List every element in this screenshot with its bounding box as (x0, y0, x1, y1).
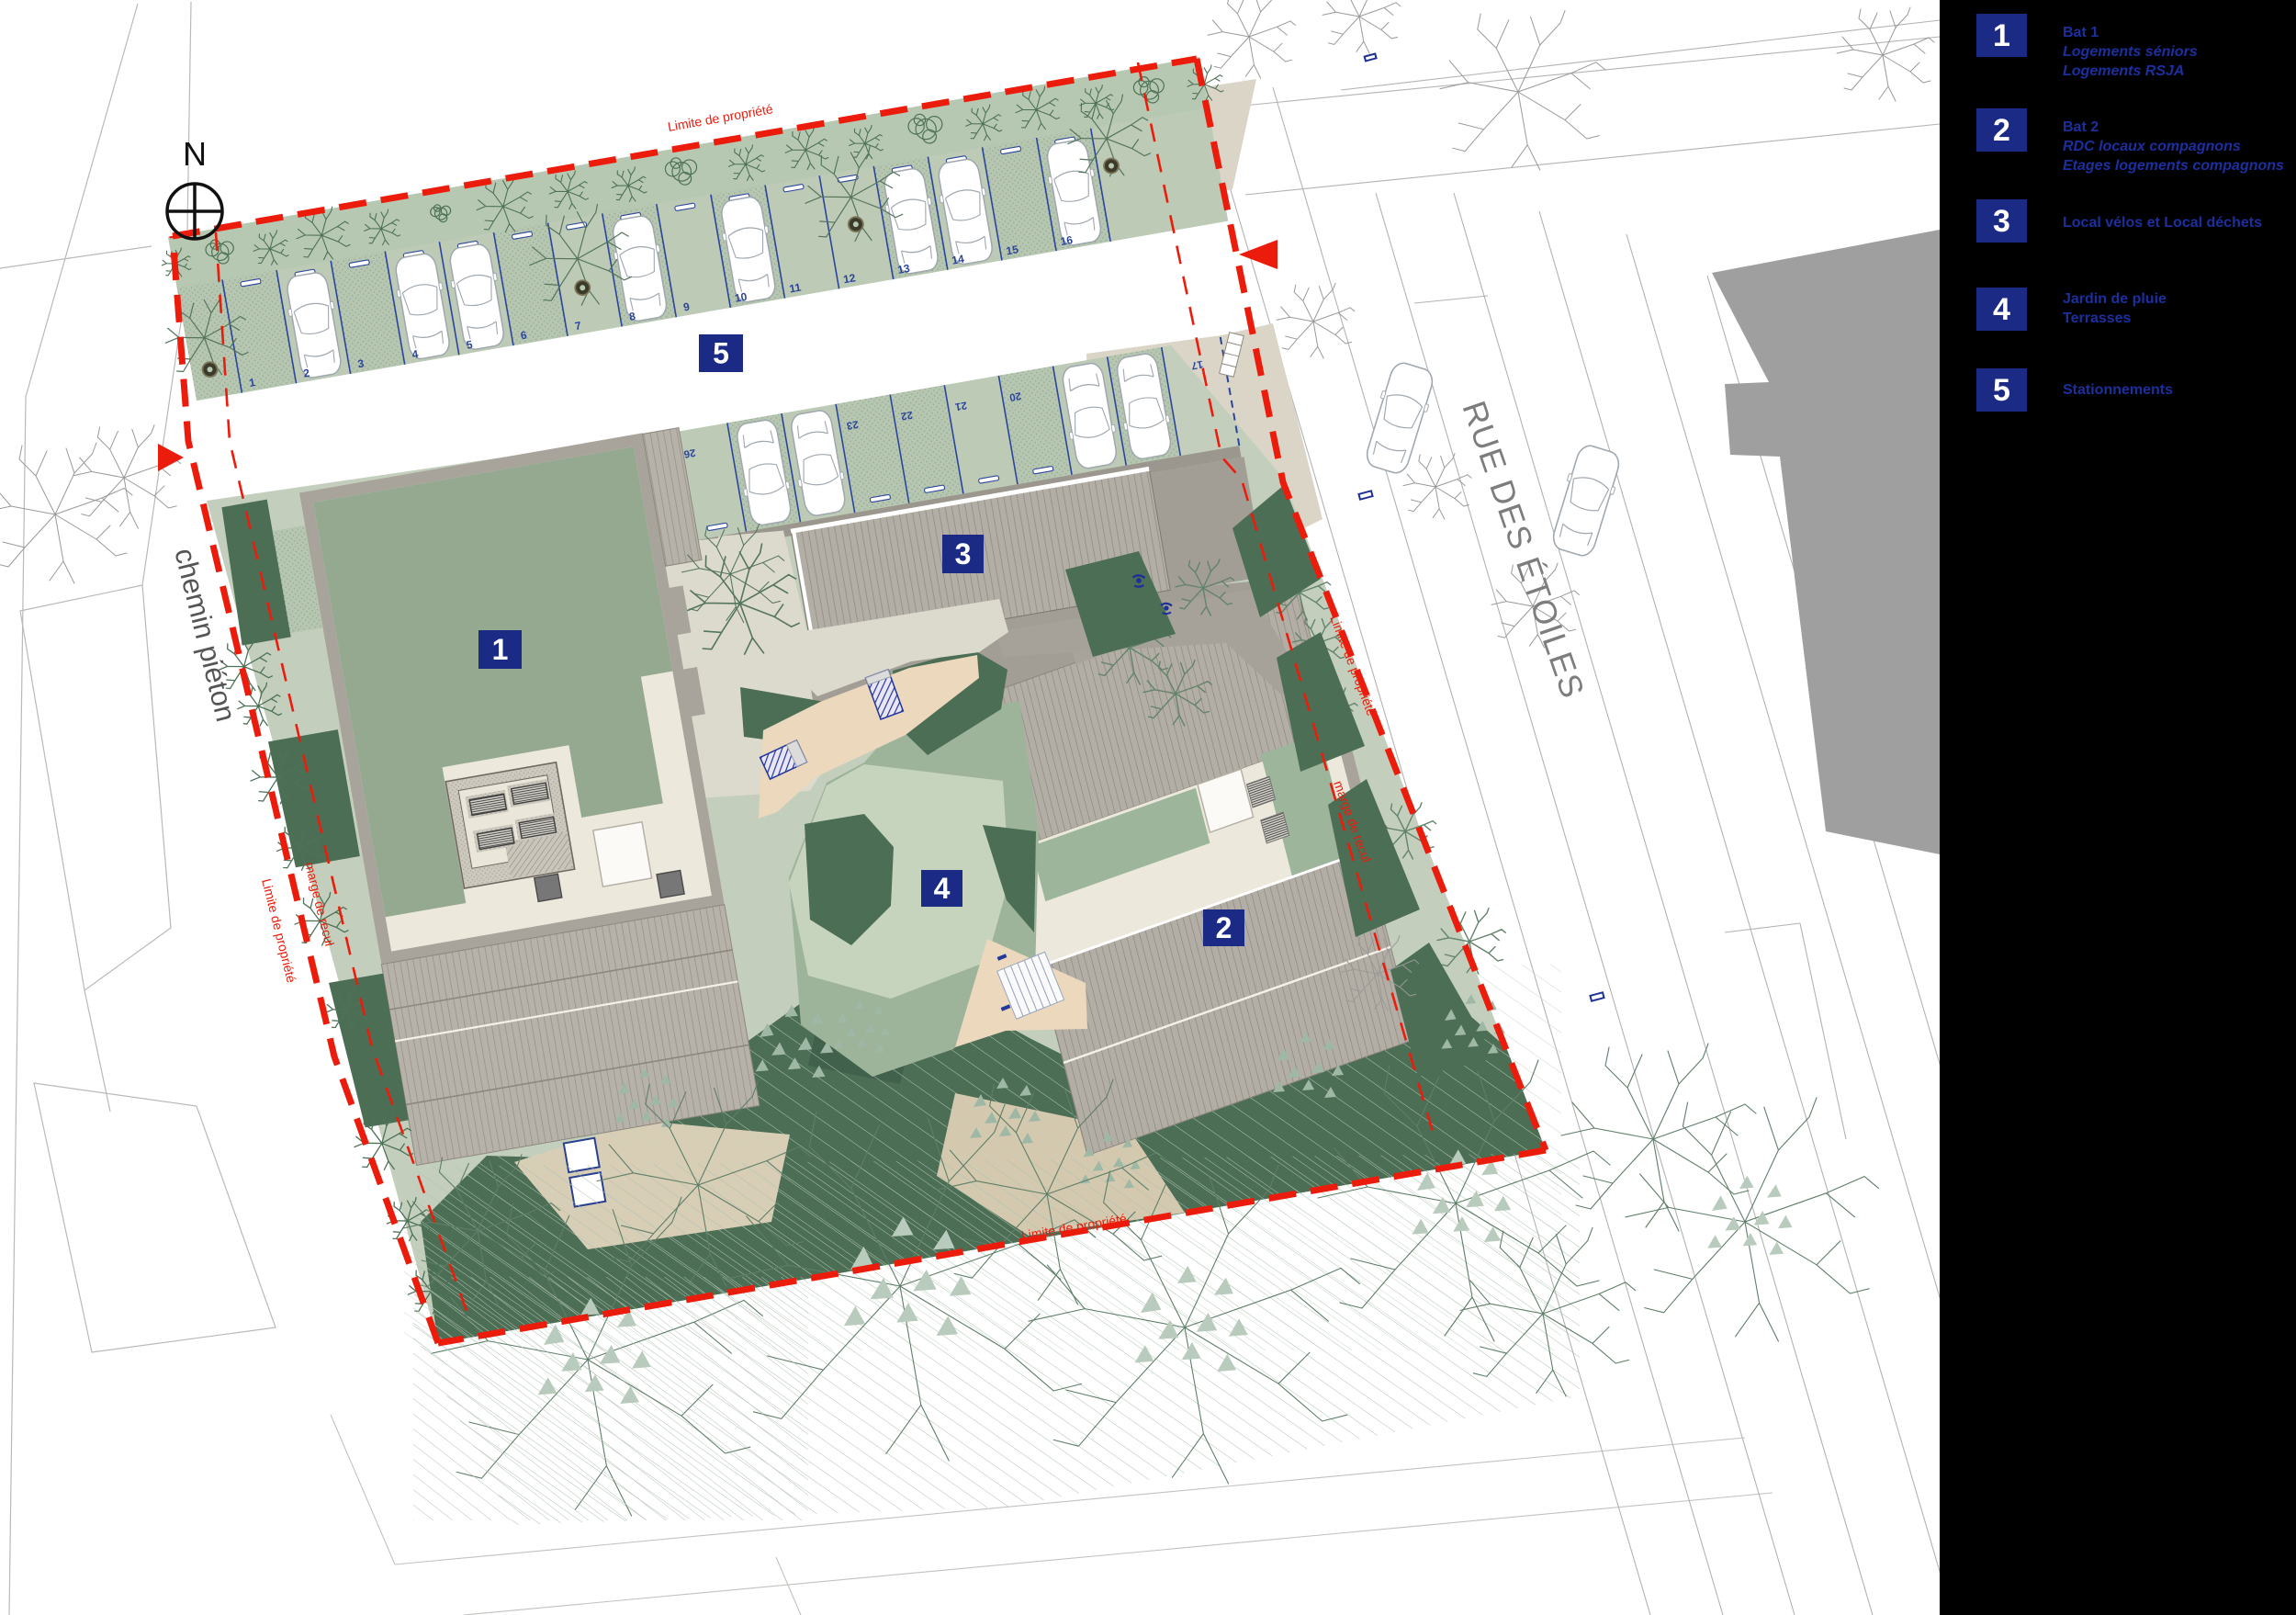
svg-text:26: 26 (682, 446, 696, 459)
svg-text:22: 22 (900, 409, 914, 422)
svg-text:23: 23 (846, 418, 860, 431)
svg-text:1: 1 (492, 633, 509, 666)
svg-text:2: 2 (1216, 911, 1232, 944)
svg-text:RDC locaux compagnons: RDC locaux compagnons (2063, 139, 2241, 154)
svg-text:Terrasses: Terrasses (2063, 311, 2132, 326)
svg-text:Etages logements compagnons: Etages logements compagnons (2063, 158, 2284, 174)
svg-text:Logements RSJA: Logements RSJA (2063, 63, 2184, 79)
svg-text:Bat 1: Bat 1 (2063, 25, 2099, 40)
svg-text:16: 16 (1060, 233, 1075, 248)
svg-text:14: 14 (951, 253, 965, 267)
svg-text:10: 10 (734, 290, 748, 305)
svg-text:N: N (183, 135, 207, 173)
svg-text:2: 2 (1993, 113, 2010, 148)
svg-text:Bat 2: Bat 2 (2063, 119, 2099, 135)
svg-text:Logements séniors: Logements séniors (2063, 44, 2198, 60)
svg-text:12: 12 (842, 271, 857, 286)
svg-text:1: 1 (1993, 18, 2010, 53)
svg-text:3: 3 (955, 537, 972, 570)
svg-text:4: 4 (934, 872, 951, 905)
svg-text:Stationnements: Stationnements (2063, 382, 2173, 398)
svg-text:5: 5 (1993, 373, 2010, 408)
svg-text:15: 15 (1005, 243, 1019, 257)
svg-text:5: 5 (713, 337, 729, 370)
svg-text:Jardin de pluie: Jardin de pluie (2063, 291, 2167, 307)
svg-text:Local vélos et Local déchets: Local vélos et Local déchets (2063, 215, 2262, 231)
svg-text:13: 13 (896, 262, 911, 277)
svg-text:20: 20 (1008, 390, 1022, 402)
svg-text:3: 3 (1993, 204, 2010, 239)
svg-text:4: 4 (1993, 292, 2010, 327)
